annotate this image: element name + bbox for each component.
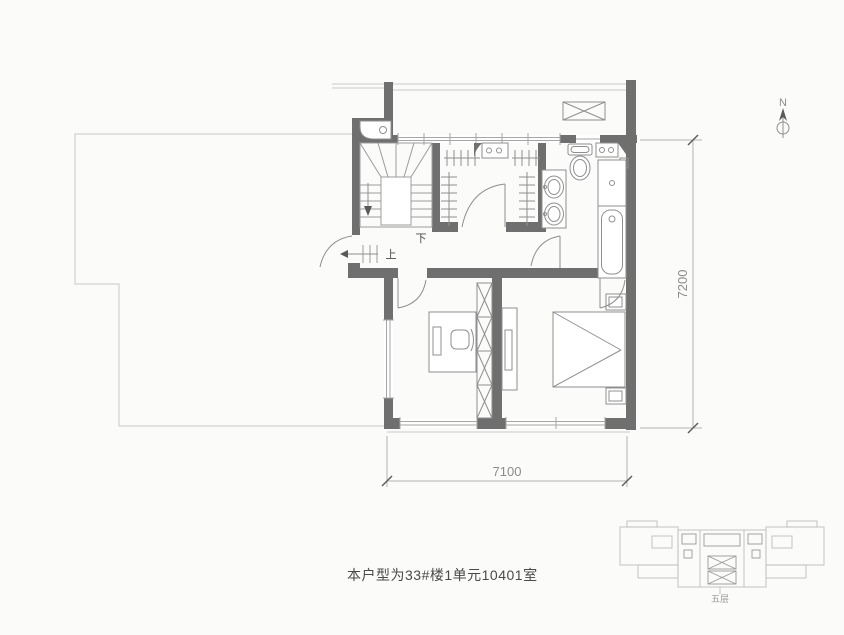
vanity-sinks-icon	[542, 170, 566, 228]
nightstand-icon	[606, 388, 626, 404]
dimension-bottom: 7100	[382, 436, 632, 487]
shower-icon	[598, 160, 626, 206]
entry-door	[320, 236, 378, 267]
study	[398, 278, 492, 418]
walk-in-closet	[441, 143, 540, 227]
staircase: 下 上	[360, 143, 432, 263]
closet-door	[462, 184, 505, 227]
bathroom-door	[531, 236, 560, 268]
floorplan-drawing: 下 上	[0, 0, 844, 635]
unit-caption: 本户型为33#楼1单元10401室	[347, 567, 538, 583]
stairs-down-label: 下	[416, 233, 427, 245]
keyplan-floor-label: 五层	[711, 594, 729, 604]
entry-arrow-icon	[340, 250, 348, 258]
wardrobe-cabinet-icon	[477, 283, 492, 418]
key-plan: 五层	[620, 521, 824, 604]
tv-console-icon	[502, 308, 517, 390]
floorplan-page: 下 上	[0, 0, 844, 635]
north-label: N	[779, 97, 787, 109]
dimension-right-value: 7200	[675, 270, 690, 299]
terrace-outline	[75, 134, 384, 426]
study-door	[398, 278, 426, 308]
bed-icon	[553, 312, 625, 387]
dimension-bottom-value: 7100	[493, 464, 522, 479]
nightstand-icon	[606, 294, 626, 310]
equipment-platform-icon	[563, 102, 605, 120]
stairs-up-label: 上	[386, 248, 397, 261]
bathtub-icon	[598, 206, 626, 278]
bedroom	[502, 278, 626, 404]
north-arrow-icon: N	[777, 97, 789, 138]
toilet-icon	[568, 144, 592, 180]
dimension-right: 7200	[640, 135, 702, 433]
